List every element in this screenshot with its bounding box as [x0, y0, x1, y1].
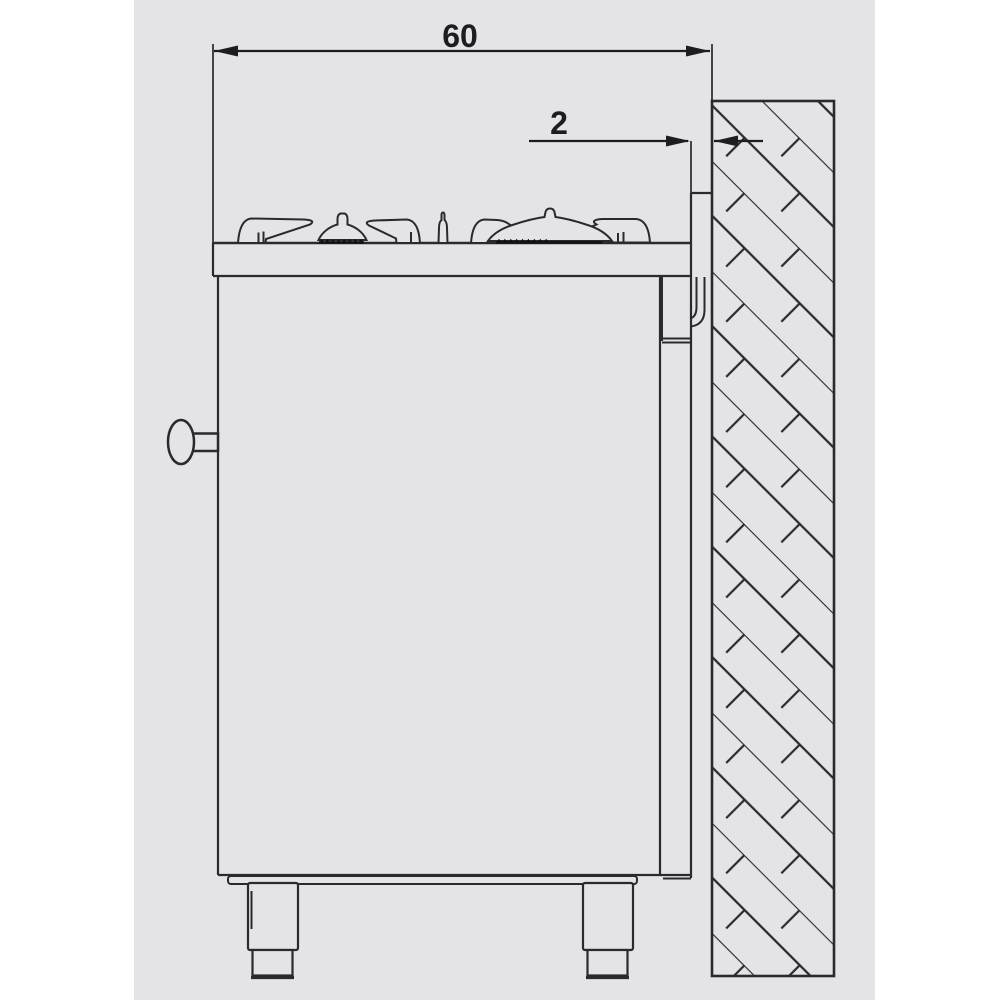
knob-stem	[193, 434, 219, 452]
knob-head	[168, 420, 194, 464]
drawing-page: 60 2	[0, 0, 1000, 1000]
burner-base	[319, 241, 364, 243]
dimension-label-60: 60	[442, 18, 478, 54]
wall-cross-section	[712, 101, 834, 976]
foot-front	[248, 883, 298, 978]
installation-diagram: 60 2	[0, 0, 1000, 1000]
dimension-label-2: 2	[550, 105, 568, 141]
foot-rear	[583, 883, 633, 978]
burner-base	[496, 241, 602, 243]
